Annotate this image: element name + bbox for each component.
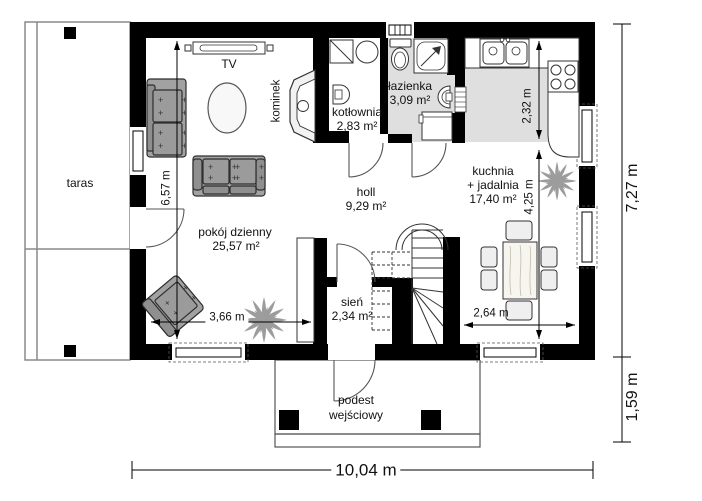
room-label-kitchen: kuchnia	[472, 165, 513, 177]
chair	[506, 221, 532, 240]
window-dining-bottom	[484, 348, 536, 357]
terrace-post-top	[64, 27, 76, 39]
plant-kitchen	[537, 161, 576, 200]
window-kitchen-right	[582, 110, 592, 162]
dim-kitchen-depth: 2,32 m	[522, 88, 534, 123]
tv-label: TV	[221, 58, 236, 70]
wall-top	[130, 22, 595, 38]
bathroom-door	[412, 143, 446, 177]
floor-plan-drawing: + ++ + + ++ + + ++ + + ++ + + ++ +	[0, 0, 702, 501]
boiler-door	[349, 143, 383, 177]
entry-porch	[275, 360, 480, 447]
room-label-boiler: kotłownia	[332, 106, 382, 118]
wall-right	[579, 22, 595, 360]
armchair: + ++ +	[141, 269, 211, 338]
window-living-bottom	[176, 348, 241, 357]
entrance-opening	[328, 344, 375, 360]
room-area-hall: 9,29 m²	[346, 200, 387, 212]
fireplace	[290, 70, 315, 142]
room-label-hall: holl	[357, 186, 376, 198]
porch-label: podest	[338, 394, 374, 406]
wall-living-hall	[313, 238, 327, 344]
wall-left	[130, 22, 146, 360]
wall-stair-right	[443, 237, 460, 344]
chair	[541, 270, 557, 290]
chair	[506, 301, 532, 320]
chair	[541, 247, 557, 267]
stair-handrail-curve	[396, 224, 448, 250]
terrace-door	[146, 209, 184, 247]
dim-total-height: 7,27 m	[625, 164, 641, 213]
fireplace-label: kominek	[271, 80, 283, 123]
terrace-post-bottom	[64, 345, 76, 357]
floor-plan: + ++ + + ++ + + ++ + + ++ + + ++ +	[0, 0, 702, 501]
tv-cabinet	[185, 42, 273, 54]
stove-icon	[548, 61, 578, 92]
washing-machine-icon	[419, 112, 452, 140]
rug-oval	[208, 83, 246, 133]
room-label-vestibule: sień	[341, 296, 363, 308]
heater-icon	[455, 87, 466, 112]
room-label-kitchen2: + jadalnia	[467, 179, 519, 191]
terrace-outline	[25, 22, 130, 360]
dim-living-height: 6,57 m	[161, 170, 173, 205]
room-label-living: pokój dzienny	[198, 226, 271, 238]
water-tank-icon	[356, 41, 378, 63]
room-area-boiler: 2,83 m²	[337, 120, 378, 132]
terrace-posts	[64, 27, 76, 357]
chair	[481, 247, 497, 267]
porch-step	[275, 434, 480, 447]
dim-living-width: 3,66 m	[205, 312, 248, 324]
room-area-living: 25,57 m²	[212, 240, 259, 252]
svg-text:+ +: + +	[235, 162, 272, 172]
shower-icon	[414, 39, 448, 73]
wall-bath-bottom	[388, 134, 412, 143]
sofa-main: + ++ + + ++ +	[193, 156, 272, 196]
wall-hall-stub	[325, 277, 337, 287]
boiler-room-fixtures	[330, 40, 378, 104]
room-area-bathroom: 3,09 m²	[390, 94, 431, 106]
porch-post-right	[421, 410, 441, 430]
terrace-door-opening	[130, 207, 146, 249]
window-dining-right	[582, 212, 592, 262]
room-area-kitchen: 17,40 m²	[469, 193, 516, 205]
dim-dining-width: 2,64 m	[473, 308, 508, 320]
dim-dining-depth: 4,25 m	[524, 179, 536, 214]
wall-bath-kitchen-low	[452, 113, 465, 143]
svg-text:+ +: + +	[235, 173, 272, 183]
dim-porch-height: 1,59 m	[625, 373, 641, 422]
room-label-bathroom: łazienka	[388, 80, 432, 92]
kitchen-sink-icon	[480, 38, 529, 67]
porch-post-left	[279, 410, 299, 430]
vestibule-door	[337, 244, 375, 282]
wall-bath-kitchen-top	[447, 38, 465, 75]
partition-living	[297, 238, 314, 342]
porch-label2: wejściowy	[329, 409, 383, 421]
room-label-terrace: taras	[67, 177, 94, 189]
dining-set	[481, 221, 557, 320]
wall-boiler-bath	[380, 38, 388, 134]
room-area-vestibule: 2,34 m²	[332, 310, 373, 322]
wall-stair-inner	[392, 278, 413, 344]
sofa-left: + ++ + + ++ +	[147, 79, 195, 157]
window-left	[133, 131, 143, 171]
chair	[481, 270, 497, 290]
dim-total-width: 10,04 m	[331, 462, 400, 479]
